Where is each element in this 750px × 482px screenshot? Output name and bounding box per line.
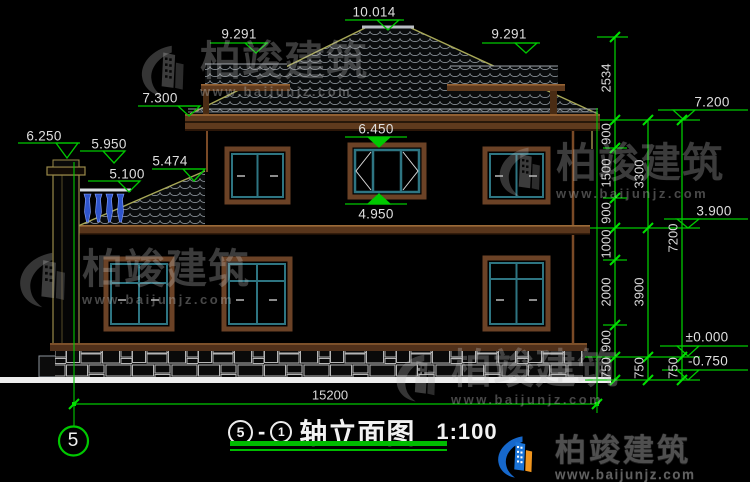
axis-bubble-number: 5 (68, 430, 79, 452)
level-left-wing: 9.291 (221, 27, 256, 42)
level-railing: 5.950 (91, 137, 126, 152)
dim-1000: 1000 (599, 230, 614, 259)
cad-linework (0, 0, 750, 482)
baijun-logo-icon (489, 435, 545, 479)
elevation-drawing-canvas: 柏竣建筑 www.baijunjz.com 柏竣建筑 www.baijunjz.… (0, 0, 750, 482)
chimney-base (39, 356, 57, 377)
ground-line (0, 377, 611, 383)
dim-750: 750 (599, 357, 614, 379)
dim-2534: 2534 (599, 64, 614, 93)
level-second-floor: 3.900 (696, 204, 731, 219)
level-window-head: 6.450 (358, 122, 393, 137)
window-1f-mid (224, 259, 290, 329)
title-text: 轴立面图 (299, 412, 415, 452)
footer-brand-text: 柏竣建筑 (555, 435, 696, 466)
window-2f-left (227, 149, 288, 202)
window-1f-left (106, 259, 172, 329)
dim-750: 750 (632, 357, 647, 379)
footer-brand-url: www.baijunjz.com (555, 467, 696, 482)
title-underline-thin (230, 449, 447, 451)
dim-total-width: 15200 (312, 388, 348, 403)
window-2f-right (485, 149, 548, 202)
window-1f-right (485, 258, 548, 329)
footer-brand-logo: 柏竣建筑 www.baijunjz.com (489, 435, 696, 482)
dim-7200: 7200 (666, 224, 681, 253)
dim-1500: 1500 (599, 159, 614, 188)
level-terrace: 5.100 (109, 167, 144, 182)
title-axis-end: 1 (270, 421, 292, 443)
stone-base (50, 343, 587, 378)
dim-900: 900 (599, 123, 614, 145)
level-right-eave: 7.200 (694, 95, 729, 110)
dim-900: 900 (599, 330, 614, 352)
dim-3300: 3300 (632, 160, 647, 189)
level-ground: -0.750 (688, 354, 728, 369)
drawing-title: 5 - 1 轴立面图 1:100 (228, 412, 498, 452)
dim-750: 750 (666, 357, 681, 379)
dim-2000: 2000 (599, 278, 614, 307)
level-window-sill: 4.950 (358, 207, 393, 222)
level-pent-roof: 5.474 (152, 154, 187, 169)
title-underline-thick (230, 441, 447, 446)
level-ridge: 10.014 (352, 5, 395, 20)
dim-900: 900 (599, 202, 614, 224)
window-2f-center (350, 145, 424, 197)
level-left-eave: 7.300 (142, 91, 177, 106)
level-zero: ±0.000 (686, 330, 729, 345)
dim-3900: 3900 (632, 278, 647, 307)
level-right-wing: 9.291 (491, 27, 526, 42)
level-chimney: 6.250 (26, 129, 61, 144)
